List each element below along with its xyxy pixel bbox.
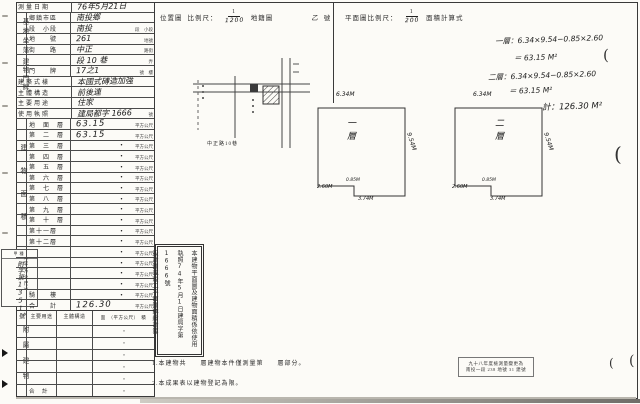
floor-area-cell: ・平方公尺	[71, 279, 154, 289]
attached-building-table: 主要用途 主體構造 面 （平方公尺） 積 ・・・・・合 計・	[16, 311, 155, 397]
resurvey-stamp: 九十八年度檢測量變更為 南投一段 238 地號 31 建號	[458, 357, 534, 377]
building-info-table: 測量日期76年5月21日鄉鎮市區南投鄉段 小段南投段 小段地 號261地號街 路…	[16, 2, 155, 311]
floor-area-row: 第 三 層・平方公尺	[16, 141, 154, 152]
calc-total: 計：126.30 M²	[542, 99, 603, 113]
floor-area-row: 地 面 層63.15平方公尺	[16, 119, 154, 130]
calc-floor1-result: ＝ 63.15 M²	[514, 51, 558, 64]
group-cell	[16, 130, 27, 140]
attached-area-cell: ・	[93, 350, 154, 361]
floor-label	[27, 279, 71, 289]
attached-area-cell: ・	[93, 361, 154, 372]
scale-denominator: 1200	[224, 17, 243, 25]
floor-area-row: 第 六 層・平方公尺	[16, 173, 154, 184]
floorplan-header: 平面圖比例尺： 1 200 面積計算式	[345, 9, 463, 24]
unit-suffix: 平方公尺	[135, 134, 153, 140]
floor-area-row: 第十二層・平方公尺	[16, 236, 154, 247]
plan2-notch-width-dim: 2.60M	[452, 184, 467, 190]
floor-area-cell: ・平方公尺	[71, 183, 154, 193]
floor-label: 第 二 層	[27, 130, 71, 140]
unit-suffix: 平方公尺	[135, 240, 153, 246]
row-label: 門 牌	[27, 66, 71, 76]
unit-suffix: 平方公尺	[135, 229, 153, 235]
floor-area-row: 合 計126.30平方公尺	[16, 300, 154, 310]
scale-numerator: 1	[228, 9, 240, 17]
attached-structure-cell	[57, 385, 93, 396]
floor-area-value: ・	[118, 140, 125, 150]
floor-label	[27, 247, 71, 257]
row-value-cell: 17之1號 樓	[71, 66, 154, 76]
unit-suffix: 平方公尺	[135, 123, 153, 129]
scan-smudge	[2, 62, 8, 64]
form-row: 測量日期76年5月21日	[16, 2, 154, 13]
floor-area-value: ・	[118, 226, 125, 236]
plan1-notch-depth-dim: 0.85M	[346, 178, 360, 183]
plan-scale-denominator: 200	[404, 17, 419, 24]
plan2-top-dim: 6.34M	[473, 91, 492, 98]
row-value-cell: 261地號	[71, 34, 154, 44]
floor-area-value: ・	[118, 279, 125, 289]
form-row: 段 小段南投段 小段	[16, 23, 154, 34]
row-label: 主要用途	[16, 98, 72, 108]
form-row: 主要用途住家	[16, 98, 154, 109]
scan-smudge	[2, 172, 8, 174]
group-cell	[16, 373, 27, 384]
floor-label	[27, 268, 71, 278]
attached-table-header: 主要用途 主體構造 面 （平方公尺） 積	[16, 311, 154, 326]
floor-label: 第 八 層	[27, 194, 71, 204]
plan2-notch-depth-dim: 0.85M	[482, 178, 496, 183]
row-value-cell: 本國式磚造加強	[72, 77, 154, 87]
handwritten-value: 本國式磚造加強	[77, 75, 133, 87]
unit-suffix: 平方公尺	[135, 144, 153, 150]
attached-row: ・	[16, 373, 154, 385]
attached-structure-cell	[57, 361, 93, 372]
row-label	[27, 55, 71, 65]
row-value-cell: 住家	[72, 98, 154, 108]
attached-use-cell	[27, 350, 57, 361]
plan-scale-label: 平面圖比例尺：	[345, 12, 398, 22]
plan2-bottom-dim: 3.74M	[490, 196, 505, 202]
attached-row: ・	[16, 361, 154, 373]
attached-area-cell: ・	[93, 373, 154, 384]
unit-suffix: 平方公尺	[135, 208, 153, 214]
floor-area-row: 第 八 層・平方公尺	[16, 194, 154, 205]
attached-structure-cell	[57, 326, 93, 337]
attached-header-use: 主要用途	[27, 311, 57, 325]
attached-table-rows: ・・・・・合 計・	[16, 326, 154, 396]
left-table-rows: 測量日期76年5月21日鄉鎮市區南投鄉段 小段南投段 小段地 號261地號街 路…	[16, 2, 154, 310]
attached-row: ・	[16, 326, 154, 338]
row-value-cell: 段 10 巷弄	[71, 55, 154, 65]
attached-area-cell: ・	[93, 338, 154, 349]
row-label: 街 路	[27, 45, 71, 55]
stray-paren-mark: (	[614, 142, 622, 166]
calc-floor2-result: ＝ 63.15 M²	[509, 84, 553, 97]
floor-area-value: ・	[118, 290, 125, 300]
attached-use-cell	[27, 326, 57, 337]
floor-area-cell: ・平方公尺	[71, 162, 154, 172]
handwritten-value: 17之1	[76, 65, 100, 77]
scale-label: 比例尺：	[188, 12, 218, 22]
group-cell	[16, 350, 27, 361]
handwritten-value: 南投	[76, 22, 92, 33]
subject-parcel-hatched	[263, 86, 279, 104]
attached-use-cell: 合 計	[27, 385, 57, 396]
plan1-floor-name: 一層	[344, 118, 357, 154]
plan1-bottom-dim: 3.74M	[358, 196, 373, 202]
handwritten-value: 住家	[77, 97, 93, 108]
plan1-notch-width-dim: 2.60M	[317, 184, 332, 190]
floor-area-cell: 63.15平方公尺	[71, 130, 154, 140]
scan-smudge	[2, 105, 8, 107]
plan1-top-dim: 6.34M	[336, 91, 355, 98]
footnote-2: 2.本成果表以建物登記為限。	[152, 378, 243, 387]
floor-area-row: 第 十 層・平方公尺	[16, 215, 154, 226]
handwritten-value: 中正	[76, 44, 92, 55]
unit-suffix: 平方公尺	[135, 197, 153, 203]
attached-header-area: 面 （平方公尺） 積	[93, 311, 154, 325]
floor-area-value: ・	[118, 268, 125, 278]
area-calculation-label: 面積計算式	[426, 12, 464, 22]
plan-scale-fraction: 1 200	[405, 9, 419, 24]
floor-area-cell: ・平方公尺	[71, 204, 154, 214]
printed-suffix: 路街	[144, 48, 153, 54]
statement-col-c: 設計圖或竣工平面圖轉繪計算	[147, 250, 160, 351]
floor-area-value: ・	[118, 258, 125, 268]
floor-area-value: ・	[118, 204, 125, 214]
group-label-area: 建物面積	[18, 140, 29, 240]
form-row: 使用執照建局都字 1666號	[16, 109, 154, 120]
floor-area-value: 126.30	[76, 300, 112, 311]
floor-area-value: ・	[118, 247, 125, 257]
attached-use-cell	[27, 373, 57, 384]
map-sheet-number: 乙	[311, 12, 319, 22]
row-value-cell: 中正路街	[71, 45, 154, 55]
floor-area-cell: ・平方公尺	[71, 215, 154, 225]
floor-area-row: 第 五 層・平方公尺	[16, 162, 154, 173]
floor-label: 地 面 層	[27, 119, 71, 129]
printed-suffix: 地號	[144, 38, 153, 44]
row-label: 鄉鎮市區	[27, 13, 71, 23]
row-label: 段 小段	[27, 23, 71, 33]
row-value-cell: 南投段 小段	[71, 23, 154, 33]
floor-area-cell: 63.15平方公尺	[71, 119, 154, 129]
location-scale-fraction: 1 1200	[225, 9, 244, 24]
row-label: 使用執照	[16, 109, 72, 119]
floor-label: 第十一層	[27, 226, 71, 236]
plan2-floor-name: 二層	[492, 118, 505, 154]
row-value-cell: 建局都字 1666號	[72, 109, 154, 119]
cadastral-map-label: 地籍圖	[251, 12, 274, 22]
floor-area-row: 第 四 層・平方公尺	[16, 151, 154, 162]
floor-area-cell: ・平方公尺	[71, 268, 154, 278]
floor-area-row: 第 二 層63.15平方公尺	[16, 130, 154, 141]
floor-area-cell: ・平方公尺	[71, 173, 154, 183]
floor-area-cell: ・平方公尺	[71, 151, 154, 161]
unit-suffix: 平方公尺	[135, 155, 153, 161]
floor-label	[27, 258, 71, 268]
floor-label: 第 九 層	[27, 204, 71, 214]
handwritten-value: 261	[76, 34, 92, 43]
attached-structure-cell	[57, 350, 93, 361]
form-row: 街 路中正路街	[16, 45, 154, 56]
scan-smudge	[2, 232, 8, 234]
stamp-line-2: 南投一段 238 地號 31 建號	[466, 367, 526, 373]
unit-suffix: 平方公尺	[135, 166, 153, 172]
tracing-statement-box: 本建物平面圖及建物面積係依使用 執照74年5月1日建局字第1666號 設計圖或竣…	[155, 244, 204, 357]
adjacent-block	[250, 84, 258, 92]
statement-col-b: 執照74年5月1日建局字第1666號	[160, 250, 186, 351]
stray-paren-mark: (	[609, 356, 614, 370]
floor-area-row: ・平方公尺	[16, 279, 154, 290]
floor-area-row: ・平方公尺	[16, 247, 154, 258]
floor-area-cell: ・平方公尺	[71, 258, 154, 268]
floor-area-value: 63.15	[76, 119, 106, 130]
handwritten-value: 南投鄉	[76, 12, 100, 24]
attached-row: 合 計・	[16, 385, 154, 396]
floor-area-value: ・	[118, 215, 125, 225]
floor-area-value: ・	[118, 194, 125, 204]
floor-area-value: 63.15	[76, 129, 106, 140]
floor-area-cell: ・平方公尺	[71, 194, 154, 204]
floor-area-row: 第十一層・平方公尺	[16, 226, 154, 237]
row-label: 測量日期	[16, 2, 72, 12]
attached-area-cell: ・	[93, 326, 154, 337]
group-label-site: 基地坐落	[18, 17, 29, 57]
attached-use-cell	[27, 361, 57, 372]
attached-use-cell	[27, 338, 57, 349]
attached-structure-cell	[57, 373, 93, 384]
floor-area-value: ・	[118, 172, 125, 182]
form-row: 門 牌17之1號 樓	[16, 66, 154, 77]
floor-area-cell: ・平方公尺	[71, 247, 154, 257]
floor-area-cell: 126.30平方公尺	[71, 300, 154, 310]
attached-area-cell: ・	[93, 385, 154, 396]
building-survey-form: 甲種 附字第1351號 測量日期76年5月21日鄉鎮市區南投鄉段 小段南投段 小…	[0, 0, 640, 404]
margin-arrow-mark	[2, 349, 8, 357]
printed-suffix: 號 樓	[140, 70, 154, 76]
floor-label: 第 七 層	[27, 183, 71, 193]
statement-col-a: 本建物平面圖及建物面積係依使用	[186, 250, 199, 351]
floor-area-cell: ・平方公尺	[71, 141, 154, 151]
floor-label: 合 計	[27, 300, 71, 310]
floor-label: 第 十 層	[27, 215, 71, 225]
group-label-address: 建物門牌	[18, 57, 29, 93]
attached-row: ・	[16, 350, 154, 362]
form-row: 鄉鎮市區南投鄉	[16, 13, 154, 24]
group-cell	[16, 338, 27, 349]
location-title: 位置圖	[160, 12, 183, 22]
margin-arrow-mark	[2, 380, 8, 388]
group-cell	[16, 119, 27, 129]
floor-area-row: ・平方公尺	[16, 268, 154, 279]
floor-area-row: ・平方公尺	[16, 258, 154, 269]
group-cell	[16, 385, 27, 396]
plan-scale-numerator: 1	[406, 9, 418, 17]
floor-area-cell: ・平方公尺	[71, 226, 154, 236]
row-value-cell: 南投鄉	[71, 13, 154, 23]
stray-paren-mark: (	[629, 353, 634, 369]
printed-suffix: 段 小段	[135, 27, 153, 33]
floor-area-row: 第 九 層・平方公尺	[16, 204, 154, 215]
row-value-cell: 前後連	[72, 87, 154, 97]
attached-header-structure: 主體構造	[57, 311, 93, 325]
floor-label: 第 四 層	[27, 151, 71, 161]
stray-paren-mark: (	[603, 46, 609, 64]
floor-area-value: ・	[118, 183, 125, 193]
unit-suffix: 平方公尺	[135, 187, 153, 193]
unit-suffix: 平方公尺	[135, 176, 153, 182]
printed-suffix: 號	[149, 112, 154, 118]
row-label: 地 號	[27, 34, 71, 44]
group-cell	[16, 361, 27, 372]
scan-smudge	[2, 15, 8, 17]
sketch-street-label: 中正路10巷	[207, 140, 238, 147]
floor-label: 騎 樓	[27, 290, 71, 300]
floor-area-value: ・	[118, 162, 125, 172]
floor-area-row: 騎 樓・平方公尺	[16, 290, 154, 301]
printed-suffix: 弄	[149, 59, 154, 65]
sheet-unit: 號	[324, 12, 332, 22]
floor-label: 第 三 層	[27, 141, 71, 151]
floor-area-value: ・	[118, 236, 125, 246]
floor-area-row: 第 七 層・平方公尺	[16, 183, 154, 194]
floor-area-cell: ・平方公尺	[71, 290, 154, 300]
attached-header-group-cell	[16, 311, 27, 325]
floor-label: 第十二層	[27, 236, 71, 246]
row-value-cell: 76年5月21日	[72, 2, 154, 12]
group-label-area-unit: （平方公尺）	[18, 244, 29, 304]
floor-label: 第 五 層	[27, 162, 71, 172]
attached-structure-cell	[57, 338, 93, 349]
attached-row: ・	[16, 338, 154, 350]
location-map-header: 位置圖 比例尺： 1 1200 地籍圖 乙 號	[160, 9, 331, 24]
unit-suffix: 平方公尺	[135, 219, 153, 225]
floor-area-value: ・	[118, 151, 125, 161]
floor-area-cell: ・平方公尺	[71, 236, 154, 246]
group-cell	[16, 326, 27, 337]
scan-edge-shadow	[140, 399, 640, 403]
floor-label: 第 六 層	[27, 173, 71, 183]
form-row: 建築式樣本國式磚造加強	[16, 77, 154, 88]
footnote-1: 1.本建物共 層建物本件僅測量第 層部分。	[152, 358, 306, 367]
